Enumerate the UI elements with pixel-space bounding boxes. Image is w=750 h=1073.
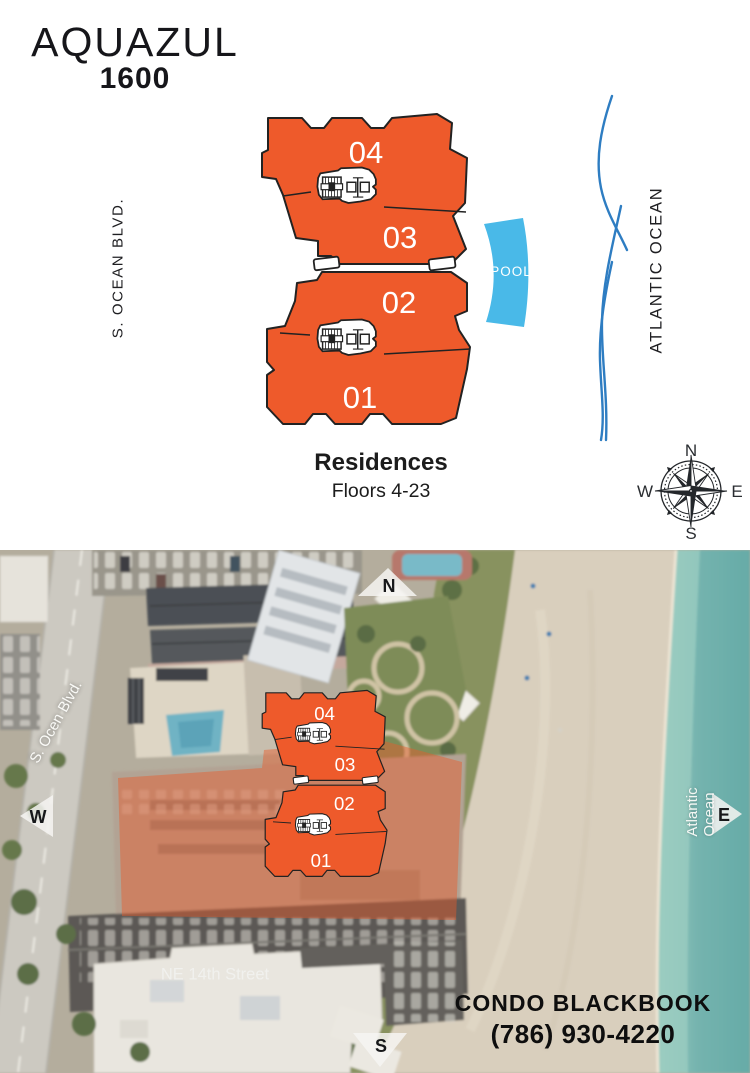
ocean-label-site-plan: ATLANTIC OCEAN [648, 187, 667, 354]
marker-w-label: W [30, 807, 47, 827]
marker-e-label: E [718, 805, 730, 825]
caption-subtitle: Floors 4-23 [314, 480, 447, 503]
logo-number: 1600 [28, 62, 242, 96]
compass-s-label: S [685, 524, 696, 543]
satellite-map: N W E S S. Ocen Blvd. Atlantic Ocean NE … [0, 550, 750, 1073]
ocean-label-satellite: Atlantic Ocean [684, 787, 718, 836]
branding-block: CONDO BLACKBOOK (786) 930-4220 [433, 990, 733, 1050]
flyer-page: 04 03 02 01 POOL [0, 0, 750, 1073]
caption-title: Residences [314, 449, 447, 477]
logo-name: AQUAZUL [28, 20, 242, 65]
marker-s-label: S [375, 1036, 387, 1056]
company-name: CONDO BLACKBOOK [433, 990, 733, 1017]
compass-n-label: N [685, 441, 697, 460]
marker-n-label: N [383, 576, 396, 596]
compass-rose-icon [655, 455, 727, 527]
logo: AQUAZUL 1600 [28, 20, 242, 96]
compass-e-label: E [731, 482, 742, 501]
cross-street-label: NE 14th Street [161, 966, 269, 985]
street-label-site-plan: S. OCEAN BLVD. [110, 198, 127, 339]
phone-number: (786) 930-4220 [433, 1019, 733, 1050]
pool-label: POOL [490, 264, 532, 279]
shoreline-waves [599, 96, 627, 440]
compass-w-label: W [637, 482, 653, 501]
plan-caption: Residences Floors 4-23 [314, 449, 447, 503]
